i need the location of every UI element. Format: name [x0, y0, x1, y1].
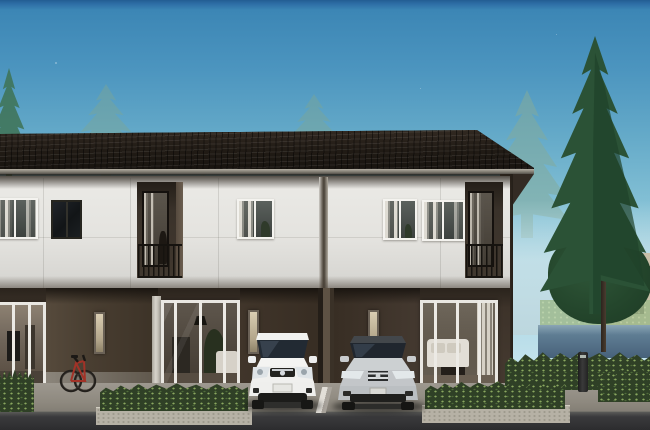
bicycle	[57, 341, 99, 393]
glass-slider-unit1	[0, 302, 46, 388]
glass-slider-unit3	[420, 300, 498, 388]
townhouse-rendering	[0, 0, 650, 430]
sky-speck	[55, 62, 57, 64]
houseplant-silhouette	[261, 221, 270, 237]
balcony-railing	[138, 244, 182, 278]
window-unit2	[237, 199, 274, 239]
corner-trim	[152, 296, 161, 388]
panel-seam	[43, 178, 44, 288]
carport-ceiling-shadow	[334, 288, 420, 304]
sky-speck	[420, 88, 421, 89]
panel-seam	[218, 178, 219, 288]
silver-sedan-car	[332, 336, 424, 410]
bollard-light	[578, 352, 588, 392]
sky-speck	[556, 34, 557, 35]
carport-ceiling-shadow	[46, 288, 158, 304]
white-hatchback-car	[246, 330, 319, 410]
window-unit1-dark	[51, 200, 82, 239]
balcony-railing	[466, 244, 503, 278]
window-unit1-left	[0, 198, 38, 239]
houseplant-silhouette	[405, 224, 412, 238]
panel-seam	[130, 178, 131, 288]
window-unit3-right	[422, 200, 465, 241]
garden-wall	[538, 325, 650, 358]
pine-tree-right	[538, 36, 650, 314]
eave-shadow	[0, 174, 512, 189]
bollard-lamp	[580, 355, 586, 358]
window-unit3-left	[383, 199, 417, 240]
glass-slider-unit2	[161, 300, 240, 388]
unit-separation-joint	[319, 177, 328, 288]
carport-ceiling-shadow	[240, 288, 322, 304]
